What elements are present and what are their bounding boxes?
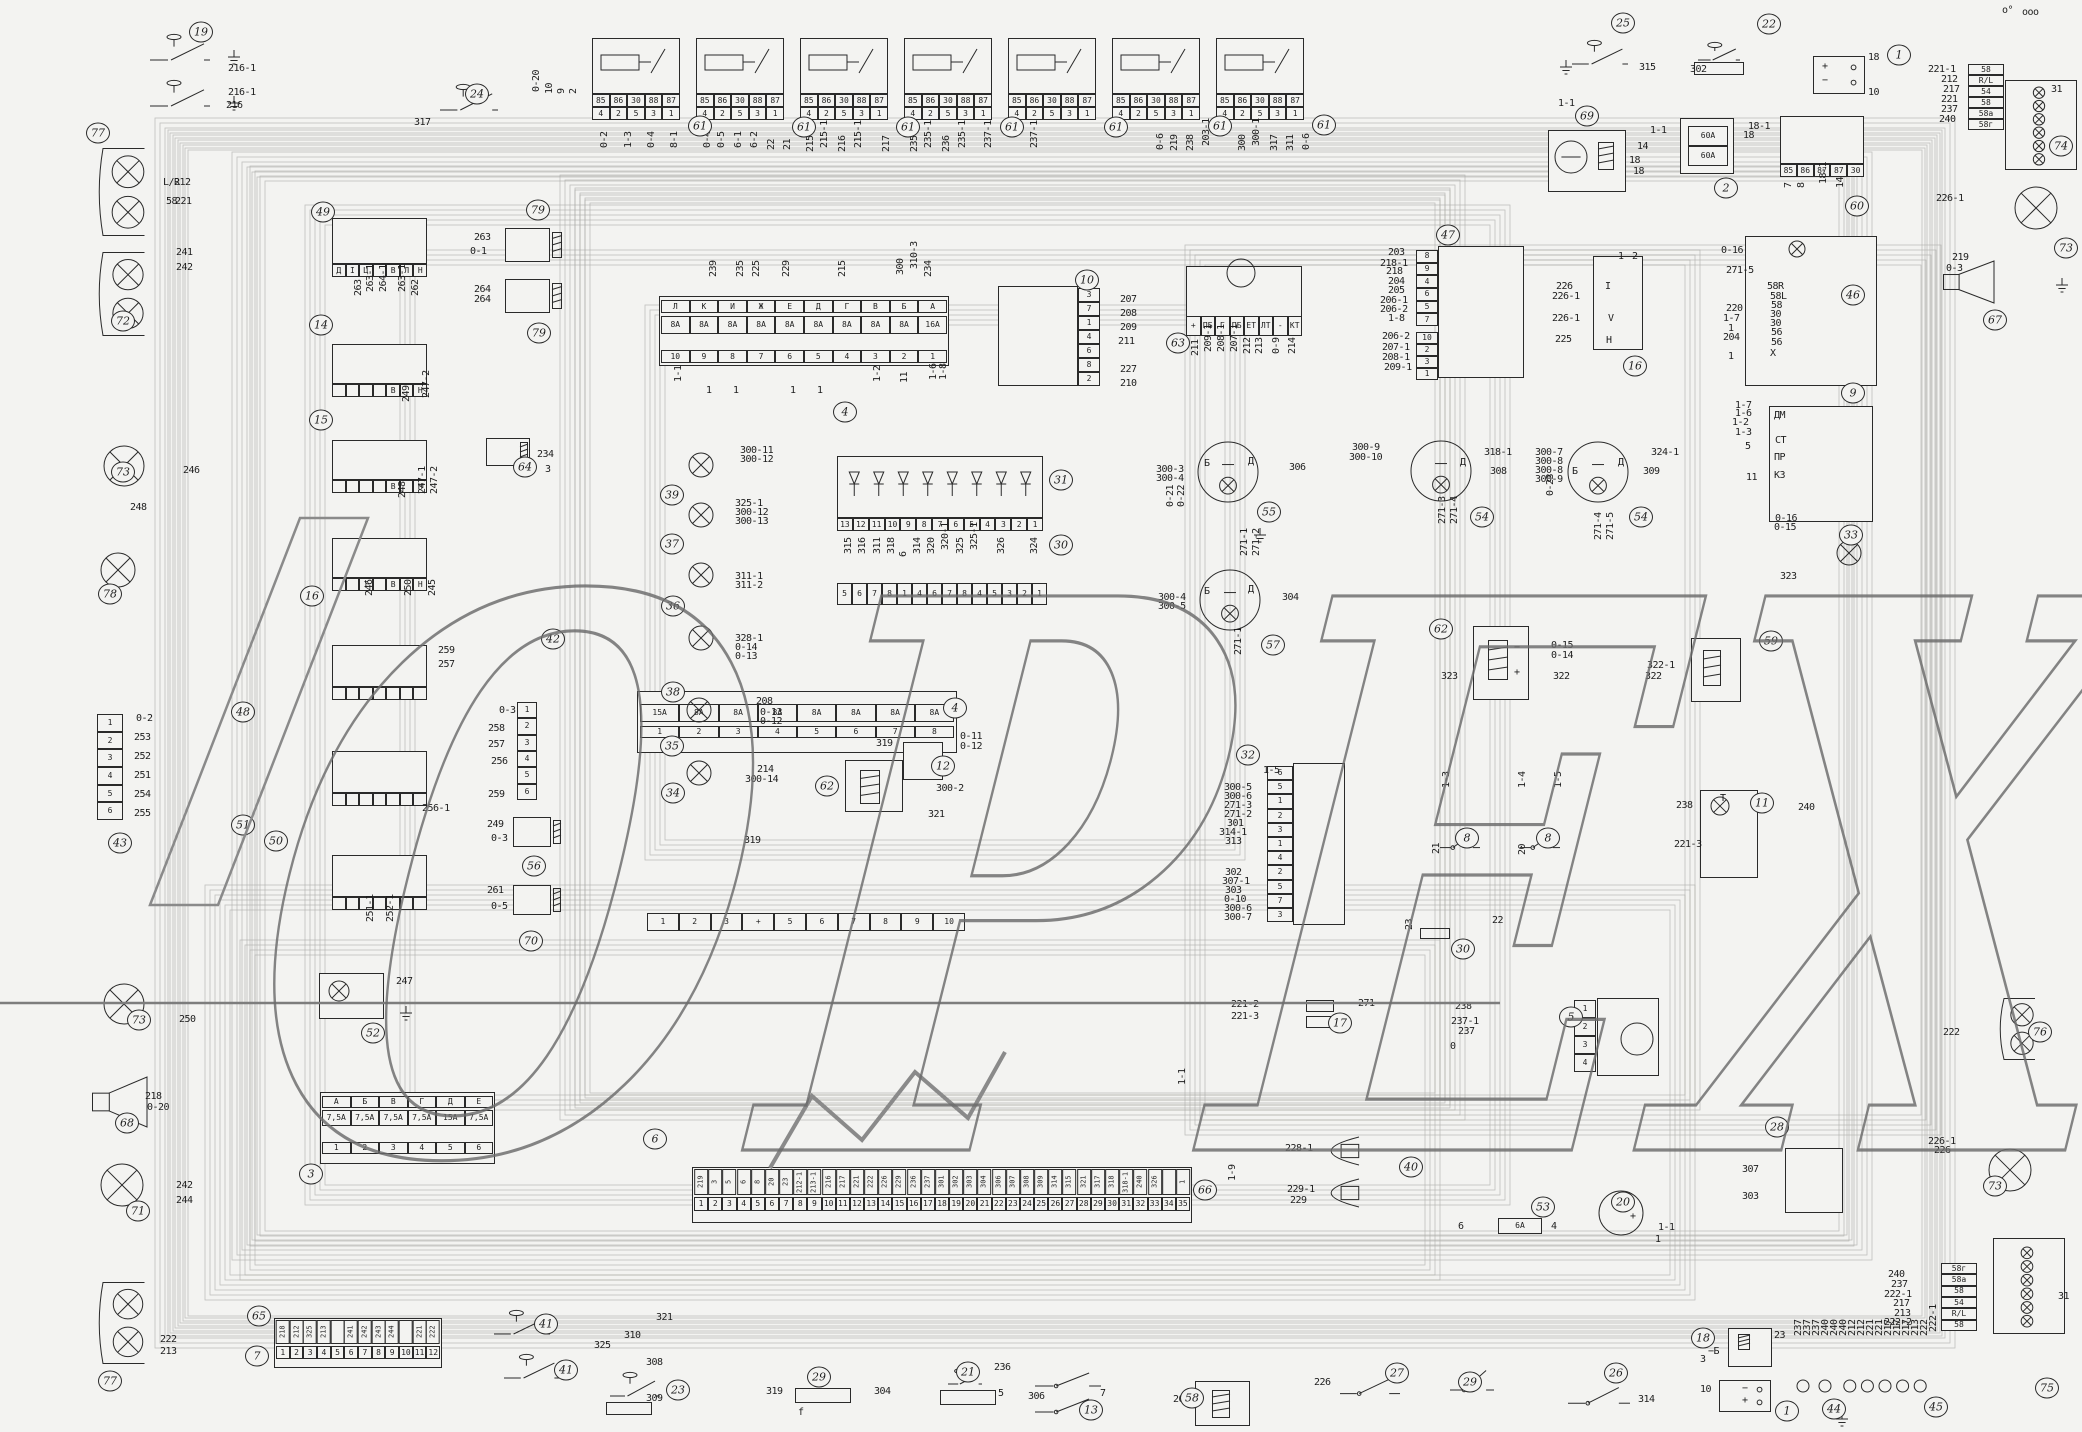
component-box: [332, 538, 427, 578]
wire-label: 325: [594, 1341, 611, 1351]
wire-label: +: [1742, 1396, 1748, 1406]
pin-cell: 12: [850, 1197, 864, 1211]
pin-cell: 4: [517, 751, 537, 767]
pin-cell: [386, 687, 400, 700]
wire-label: 6-1: [734, 131, 744, 148]
wire-label: 308: [646, 1358, 663, 1368]
pin-cell: 4: [972, 583, 987, 605]
pin-cell: 8А: [775, 316, 804, 334]
wire-label: 213: [1255, 337, 1265, 354]
wire-label: 18: [1633, 167, 1644, 177]
wire-label: 7: [1100, 1389, 1106, 1399]
relay-body: [1216, 38, 1304, 94]
hatch-symbol-icon: [1738, 1334, 1750, 1350]
pin-cell: 9: [807, 1197, 821, 1211]
component-ref-52: 52: [361, 1023, 385, 1044]
pin-cell: 6: [765, 1197, 779, 1211]
watermark-gear-edge: [770, 1052, 1005, 1168]
pin-cell: 1: [97, 714, 123, 732]
gnd-symbol-icon: [228, 50, 240, 64]
gnd-symbol-icon: [400, 1006, 412, 1020]
component-ref-61: 61: [792, 117, 816, 138]
wire-label: 10: [545, 83, 555, 94]
relay-pin: 5: [1043, 107, 1061, 120]
pin-cell: 8: [372, 1346, 386, 1359]
pin-cell: 243: [372, 1320, 386, 1344]
wire-label: 0-3: [1946, 264, 1963, 274]
pin-cell: 5: [804, 350, 833, 363]
wire-label: 226-1: [1552, 292, 1580, 302]
pin-cell: 5: [436, 1142, 465, 1154]
component-ref-29: 29: [1458, 1372, 1482, 1393]
component-ref-4: 4: [833, 402, 857, 423]
circles-symbol-icon: [1841, 1378, 1929, 1394]
wire-label: 204: [1723, 333, 1740, 343]
pin-cell: К: [690, 300, 719, 313]
pin-cell: 4: [758, 726, 797, 738]
wire-label: 211: [1118, 337, 1135, 347]
component-ref-41: 41: [534, 1314, 558, 1335]
pin-cell: 2: [97, 732, 123, 750]
pin-cell: Н: [413, 264, 427, 277]
wire-label: 207-1: [1230, 324, 1240, 352]
relay-pin-strip: 8586308887: [696, 94, 784, 107]
wire-label: 236: [942, 135, 952, 152]
pin-cell: 8А: [876, 704, 915, 722]
pin-cell: 11: [836, 1197, 850, 1211]
wire-label: 234: [537, 450, 554, 460]
wire-label: 214: [1288, 337, 1298, 354]
relay-pin: 2: [610, 107, 628, 120]
component-ref-3: 3: [299, 1164, 323, 1185]
wire-label: 318: [887, 537, 897, 554]
wire-label: 237-1: [984, 120, 994, 148]
component-ref-62: 62: [1429, 619, 1453, 640]
pin-cell: 15А: [640, 704, 679, 722]
lamp2-symbol-icon: [95, 1282, 161, 1364]
relay-body: [800, 38, 888, 94]
pin-cell: 3: [708, 1169, 722, 1195]
pin-cell: 212: [290, 1320, 304, 1344]
pin-cell: [413, 687, 427, 700]
pin-cell: 1: [1267, 794, 1293, 808]
pin-cell: 14: [878, 1197, 892, 1211]
pin-cell: 5: [97, 785, 123, 803]
wire-label: 253: [134, 733, 151, 743]
component-ref-1: 1: [1775, 1401, 1799, 1422]
component-box: [1438, 246, 1524, 378]
hatch-symbol-icon: [552, 232, 562, 258]
pin-cell: Г: [408, 1096, 437, 1108]
pin-cell: 19: [949, 1197, 963, 1211]
component-box: [1745, 236, 1877, 386]
wire-label: 300-10: [1349, 453, 1382, 463]
lamp-symbol-icon: [328, 980, 350, 1002]
component-box: [998, 286, 1078, 386]
wire-label: 0-15: [1774, 523, 1796, 533]
pin-cell: 30: [1105, 1197, 1119, 1211]
wire-label: 308: [1490, 467, 1507, 477]
relay-pin-strip: 8586308887: [1112, 94, 1200, 107]
pin-cell: 242: [358, 1320, 372, 1344]
wire-label: 239: [709, 260, 719, 277]
wire-label: 323: [1780, 572, 1797, 582]
component-ref-59: 59: [1759, 631, 1783, 652]
wire-label: 306: [1028, 1392, 1045, 1402]
relay-pin-strip: 42531: [1112, 107, 1200, 120]
wire-label: 300: [896, 258, 906, 275]
pin-cell: ЕТ: [1244, 316, 1259, 336]
pin-cell: 1: [1267, 837, 1293, 851]
wire-label: 6: [899, 551, 909, 557]
pin-strip: [332, 897, 427, 910]
wire-label: 2: [569, 88, 579, 94]
pin-cell: [331, 1320, 345, 1344]
pin-cell: 1: [1032, 583, 1047, 605]
wire-label: 319: [876, 739, 893, 749]
wire-label: 221-3: [1231, 1012, 1259, 1022]
wire-label: 237: [1458, 1027, 1475, 1037]
pin-cell: 13: [864, 1197, 878, 1211]
wire-label: 311: [873, 537, 883, 554]
pin-cell: 33: [1148, 1197, 1162, 1211]
wire-label: 300-7: [1224, 913, 1252, 923]
pin-cell: 314: [1048, 1169, 1062, 1195]
pin-cell: Д: [332, 264, 346, 277]
relay-pin: 3: [645, 107, 663, 120]
component-ref-46: 46: [1841, 285, 1865, 306]
wire-label: 212: [1243, 337, 1253, 354]
component-box: [1293, 763, 1345, 925]
wire-label: 261: [487, 886, 504, 896]
gauge-symbol-icon: [1410, 440, 1472, 502]
pin-cell: 3: [1002, 583, 1017, 605]
component-ref-71: 71: [126, 1201, 150, 1222]
relay-pin: 88: [1061, 94, 1079, 107]
pin-cell: 2: [679, 726, 718, 738]
pin-cell: [359, 384, 373, 397]
relay-pin: 5: [731, 107, 749, 120]
pin-cell: 7: [1267, 894, 1293, 908]
component-ref-54: 54: [1470, 507, 1494, 528]
wire-label: 309: [1643, 467, 1660, 477]
wire-label: 31: [2058, 1292, 2069, 1302]
pin-cell: 5: [722, 1169, 736, 1195]
relay-pin: 1: [1286, 107, 1304, 120]
wire-label: 22: [767, 139, 777, 150]
component-ref-48: 48: [231, 702, 255, 723]
knob-symbol-icon: [504, 1354, 560, 1380]
pin-cell: 241: [344, 1320, 358, 1344]
pin-cell: 6: [1416, 288, 1438, 301]
pin-cell: 8А: [661, 316, 690, 334]
pin-cell: [332, 687, 346, 700]
pin-cell: 221: [850, 1169, 864, 1195]
component-ref-15: 15: [309, 410, 333, 431]
pin-cell: 4: [408, 1142, 437, 1154]
wire-label: 247-1: [418, 466, 428, 494]
wire-label: 300-1: [1252, 118, 1262, 146]
wire-label: 238: [1186, 134, 1196, 151]
pin-cell: 302: [949, 1169, 963, 1195]
pin-cell: +: [742, 913, 774, 931]
wire-label: 271-5: [1606, 512, 1616, 540]
pin-cell: 5: [1416, 301, 1438, 314]
component-ref-74: 74: [2049, 136, 2073, 157]
relay-body: [904, 38, 992, 94]
wire-label: 325-1: [970, 522, 980, 550]
relay-pin: 87: [766, 94, 784, 107]
relay-body: [696, 38, 784, 94]
hatch-symbol-icon: [1488, 640, 1508, 680]
pin-cell: 58: [1968, 97, 2004, 108]
wire-label: 3: [545, 465, 551, 475]
pin-cell: 4: [317, 1346, 331, 1359]
pin-cell: 2: [351, 1142, 380, 1154]
relay-pin: 88: [853, 94, 871, 107]
hatch-symbol-icon: [553, 888, 561, 912]
wire-label: 247-2: [430, 466, 440, 494]
pin-cell: 16А: [918, 316, 947, 334]
relay-pin: 1: [1078, 107, 1096, 120]
component-ref-56: 56: [522, 856, 546, 877]
pin-cell: 11: [413, 1346, 427, 1359]
wire-label: 226-1: [1936, 194, 1964, 204]
component-ref-72: 72: [111, 311, 135, 332]
pin-cell: 1: [276, 1346, 290, 1359]
pin-cell: 222: [864, 1169, 878, 1195]
wire-label: 263: [474, 233, 491, 243]
wire-label: 227: [1120, 365, 1137, 375]
pin-cell: 2: [708, 1197, 722, 1211]
wire-label: ПР: [1774, 453, 1785, 463]
knob-symbol-icon: [1572, 40, 1628, 66]
component-ref-24: 24: [465, 84, 489, 105]
relay-pin: 85: [904, 94, 922, 107]
wire-label: 258: [488, 724, 505, 734]
relay-pin-strip: 42531: [592, 107, 680, 120]
pin-strip: 3714682: [1078, 288, 1100, 386]
component-ref-26: 26: [1604, 1363, 1628, 1384]
wire-label: 7: [1784, 182, 1794, 188]
wire-label: 264-1: [379, 264, 389, 292]
relay-pin: 88: [645, 94, 663, 107]
pin-cell: 221: [413, 1320, 427, 1344]
pin-cell: 1: [647, 913, 679, 931]
wire-label: 221-2: [1231, 1000, 1259, 1010]
wire-label: 321: [656, 1313, 673, 1323]
pin-cell: 5: [751, 1197, 765, 1211]
pin-cell: 219: [694, 1169, 708, 1195]
relay-pin: 2: [818, 107, 836, 120]
pin-strip: 123456: [97, 714, 123, 820]
wire-label: 0-3: [499, 706, 516, 716]
wire-label: 248: [130, 503, 147, 513]
pin-strip: 10987654321: [661, 350, 947, 363]
wire-label: Д: [1618, 458, 1624, 468]
component-ref-32: 32: [1236, 745, 1260, 766]
relay-pin: 2: [1026, 107, 1044, 120]
pin-cell: +: [1186, 316, 1201, 336]
pin-cell: 2: [1267, 809, 1293, 823]
component-ref-11: 11: [1750, 793, 1774, 814]
wire-label: 315: [1639, 63, 1656, 73]
component-ref-45: 45: [1924, 1397, 1948, 1418]
wire-label: 22: [1492, 916, 1503, 926]
component-ref-61: 61: [896, 117, 920, 138]
knob-symbol-icon: [150, 80, 210, 108]
component-ref-2: 2: [1714, 178, 1738, 199]
component-box: [1780, 116, 1864, 164]
relay-pin: 30: [731, 94, 749, 107]
pin-cell: 7: [1078, 302, 1100, 316]
pin-cell: Е: [465, 1096, 494, 1108]
wire-label: 0-20: [532, 70, 542, 92]
wire-label: 0-21: [1166, 485, 1176, 507]
diodes-symbol-icon: [842, 462, 1038, 502]
pin-cell: 23: [779, 1169, 793, 1195]
relay-pin: 2: [1234, 107, 1252, 120]
wire-label: 322-1: [1647, 661, 1675, 671]
pin-strip: 10231: [1416, 332, 1438, 380]
component-ref-70: 70: [519, 931, 543, 952]
wire-label: 235-1: [958, 120, 968, 148]
wire-label: Д: [1248, 457, 1254, 467]
motor-symbol-icon: [1554, 140, 1588, 174]
relay-pin: 2: [1130, 107, 1148, 120]
wire-label: 215-1: [820, 120, 830, 148]
wire-label: 225: [752, 260, 762, 277]
pin-cell: 5: [1267, 780, 1293, 794]
relay-pin: 85: [1216, 94, 1234, 107]
component-ref-79: 79: [526, 200, 550, 221]
relay-pin: 5: [939, 107, 957, 120]
pin-cell: 7: [867, 583, 882, 605]
wire-label: 271-1: [1240, 528, 1250, 556]
pin-cell: 5: [987, 583, 1002, 605]
wire-label: 9: [557, 88, 567, 94]
wire-label: 310-3: [910, 241, 920, 269]
pin-cell: 29: [1091, 1197, 1105, 1211]
pin-strip: 8А8А8А8А8А8А8А8А8А16А: [661, 316, 947, 334]
wire-label: 1-8: [939, 363, 949, 380]
wire-label: 14: [1637, 142, 1648, 152]
wire-label: 271-4: [1594, 512, 1604, 540]
pin-cell: [332, 793, 346, 806]
pin-cell: 10: [885, 518, 901, 531]
component-ref-55: 55: [1257, 502, 1281, 523]
gauge-symbol-icon: [1199, 569, 1261, 631]
wire-label: 1-3: [1735, 428, 1752, 438]
wire-label: 2: [1632, 252, 1638, 262]
wire-label: 326: [997, 537, 1007, 554]
relay-pin-strip: 42531: [1008, 107, 1096, 120]
relay-pin-strip: 8586308887: [904, 94, 992, 107]
pin-cell: 8А: [861, 316, 890, 334]
wire-label: ДМ: [1774, 411, 1785, 421]
wire-label: 322: [1645, 672, 1662, 682]
relay-pin: 1: [662, 107, 680, 120]
pin-cell: 3: [303, 1346, 317, 1359]
pin-cell: В: [379, 1096, 408, 1108]
component-ref-18: 18: [1691, 1328, 1715, 1349]
wire-label: 236: [994, 1363, 1011, 1373]
pin-cell: 58: [1941, 1286, 1977, 1297]
pin-cell: [332, 384, 346, 397]
wire-label: 240: [1939, 115, 1956, 125]
wire-label: 209: [1120, 323, 1137, 333]
pin-cell: 6: [775, 350, 804, 363]
wire-label: 226-1: [1552, 314, 1580, 324]
wire-label: 317: [414, 118, 431, 128]
pin-cell: 2: [1011, 518, 1027, 531]
component-box: [332, 218, 427, 264]
component-ref-41: 41: [554, 1360, 578, 1381]
wire-label: I: [1605, 282, 1611, 292]
wire-label: 211: [1191, 339, 1201, 356]
pin-cell: 10: [661, 350, 690, 363]
pin-cell: [400, 897, 414, 910]
wire-label: 251: [134, 771, 151, 781]
pin-cell: 8: [751, 1169, 765, 1195]
pin-cell: 1: [322, 1142, 351, 1154]
knob-symbol-icon: [1698, 42, 1740, 62]
component-ref-73: 73: [127, 1010, 151, 1031]
pin-cell: 318-1: [1119, 1169, 1133, 1195]
pin-cell: 60А: [1688, 126, 1728, 146]
hatch-symbol-icon: [1598, 142, 1614, 170]
wire-label: 252-1: [386, 894, 396, 922]
pin-cell: 2: [679, 913, 711, 931]
component-ref-76: 76: [2028, 1022, 2052, 1043]
wire-label: 300-12: [740, 455, 773, 465]
pin-cell: 237: [921, 1169, 935, 1195]
pin-cell: 1: [918, 350, 947, 363]
pin-strip: 123456: [322, 1142, 493, 1154]
wire-label: 226: [1314, 1378, 1331, 1388]
wire-label: 242: [176, 1181, 193, 1191]
relay-pin: 88: [749, 94, 767, 107]
pin-strip: 123456789101112: [276, 1346, 440, 1359]
wire-label: Н: [1606, 336, 1612, 346]
gauge-symbol-icon: [1197, 441, 1259, 503]
component-box: [513, 885, 551, 915]
pin-cell: 4: [1267, 851, 1293, 865]
relay-pin: 87: [662, 94, 680, 107]
component-ref-62: 62: [815, 776, 839, 797]
relay-pin: 87: [1182, 94, 1200, 107]
pin-cell: 3: [1574, 1036, 1596, 1054]
component-ref-66: 66: [1193, 1180, 1217, 1201]
component-ref-58: 58: [1180, 1388, 1204, 1409]
wire-label: 314: [913, 537, 923, 554]
pin-cell: [332, 578, 346, 591]
relay-pin: 5: [835, 107, 853, 120]
pin-cell: [373, 793, 387, 806]
pin-cell: 87: [1830, 164, 1847, 177]
pin-cell: 3: [722, 1197, 736, 1211]
wire-label: X: [1770, 349, 1776, 359]
wire-label: Б: [1204, 587, 1210, 597]
wire-label: 316: [858, 537, 868, 554]
pin-cell: 58а: [1941, 1274, 1977, 1285]
hatch-symbol-icon: [552, 283, 562, 309]
pin-strip: ВН: [332, 480, 427, 493]
component-ref-37: 37: [660, 534, 684, 555]
wire-label: 306: [1289, 463, 1306, 473]
pin-cell: 20: [963, 1197, 977, 1211]
pin-cell: 10: [399, 1346, 413, 1359]
